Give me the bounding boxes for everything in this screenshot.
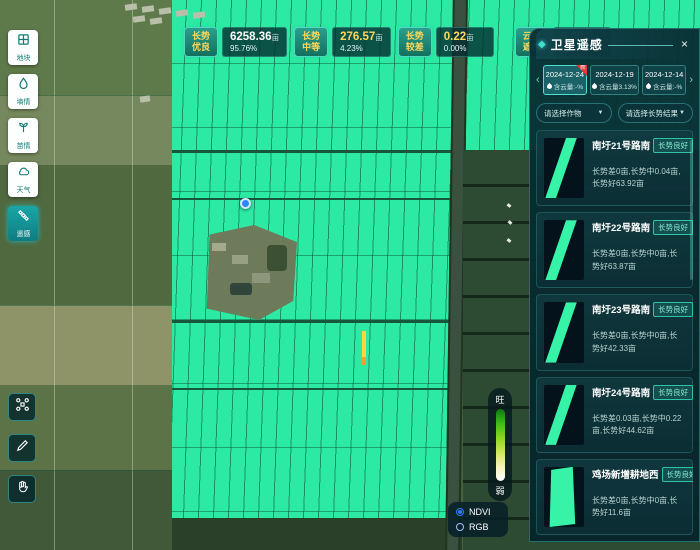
map-tree-band	[172, 518, 462, 550]
sidebar-item-label: 遥感	[16, 228, 30, 238]
stat-growth-excellent: 长势优良 6258.36亩 95.76%	[184, 27, 287, 57]
stat-unit: 亩	[272, 33, 280, 42]
map-tools	[8, 393, 36, 503]
map-road-line	[54, 0, 55, 550]
field-thumbnail	[544, 220, 584, 280]
stat-percent: 95.76%	[230, 44, 279, 53]
droplet-icon	[17, 77, 30, 95]
growth-status-badge: 长势良好	[653, 220, 693, 235]
map-field-boundary	[172, 388, 457, 390]
stat-unit: 亩	[375, 33, 383, 42]
field-list: 南圩21号路南 长势良好 长势差0亩,长势中0.04亩,长势好63.92亩 南圩…	[536, 130, 693, 535]
crop-select-label: 请选择作物	[544, 108, 582, 119]
plot-grid-icon	[17, 33, 30, 51]
radio-selected-icon[interactable]	[456, 508, 464, 516]
pencil-icon	[15, 438, 30, 458]
sidebar-item-label: 墒情	[16, 96, 30, 106]
field-card[interactable]: 南圩21号路南 长势良好 长势差0亩,长势中0.04亩,长势好63.92亩	[536, 130, 693, 206]
diamond-icon: ◆	[538, 39, 546, 50]
field-shape	[544, 220, 584, 280]
chevron-down-icon: ▼	[679, 110, 685, 116]
sidebar-item-plots[interactable]: 地块	[8, 30, 38, 65]
radio-unselected-icon[interactable]	[456, 523, 464, 531]
cloud-droplet-icon	[591, 82, 598, 89]
ndvi-legend: 旺 弱	[488, 388, 512, 501]
field-card[interactable]: 南圩23号路南 长势良好 长势差0亩,长势中0亩,长势好42.33亩	[536, 294, 693, 370]
growth-status-badge: 长势良好	[653, 385, 693, 400]
growth-status-badge: 长势良好	[653, 302, 693, 317]
date-tab[interactable]: 2024-12-19 含云量3.13%	[590, 65, 639, 95]
legend-top-label: 旺	[495, 393, 504, 406]
field-shape	[544, 302, 584, 362]
growth-select-label: 请选择长势结果	[626, 108, 679, 119]
header-decoration-line	[608, 34, 673, 46]
stat-badge: 长势较差	[398, 27, 432, 57]
growth-result-select[interactable]: 请选择长势结果 ▼	[618, 103, 694, 123]
layer-option-label: RGB	[469, 522, 489, 532]
panel-scrollbar[interactable]	[690, 140, 693, 280]
field-description: 长势差0.03亩,长势中0.22亩,长势好44.62亩	[592, 413, 685, 438]
stat-value-box: 0.22亩 0.00%	[436, 27, 494, 57]
field-card[interactable]: 鸡场新增耕地西 长势良好 长势差0亩,长势中0亩,长势好11.6亩	[536, 459, 693, 535]
date-tab[interactable]: 新 2024-12-24 含云量:-%	[543, 65, 587, 95]
layer-option-rgb[interactable]: RGB	[456, 522, 500, 532]
field-title: 南圩22号路南	[592, 220, 650, 234]
sidebar-item-label: 天气	[16, 184, 30, 194]
satellite-icon	[17, 209, 30, 227]
sidebar-item-weather[interactable]: 天气	[8, 162, 38, 197]
draw-tool-button[interactable]	[8, 434, 36, 462]
weather-icon	[17, 165, 30, 183]
sidebar-item-seedling[interactable]: 苗情	[8, 118, 38, 153]
layer-option-label: NDVI	[469, 507, 491, 517]
chevron-right-icon[interactable]: ›	[689, 65, 693, 95]
drone-tool-button[interactable]	[8, 393, 36, 421]
growth-status-badge: 长势良好	[662, 467, 693, 482]
stat-growth-medium: 长势中等 276.57亩 4.23%	[294, 27, 391, 57]
stat-area: 276.57	[340, 31, 375, 43]
stat-percent: 4.23%	[340, 44, 383, 53]
map-trees	[267, 245, 287, 271]
date-label: 2024-12-19	[592, 70, 637, 79]
layer-toggle: NDVI RGB	[448, 502, 508, 537]
field-description: 长势差0亩,长势中0亩,长势好11.6亩	[592, 495, 685, 520]
map-field-boundary	[172, 198, 457, 200]
stat-unit: 亩	[466, 33, 474, 42]
chevron-down-icon: ▼	[598, 110, 604, 116]
panel-title: 卫星遥感	[551, 36, 603, 53]
field-description: 长势差0亩,长势中0亩,长势好63.87亩	[592, 248, 685, 273]
date-label: 2024-12-24	[545, 70, 585, 79]
crop-select[interactable]: 请选择作物 ▼	[536, 103, 612, 123]
pan-tool-button[interactable]	[8, 475, 36, 503]
sidebar-item-remote-sensing[interactable]: 遥感	[8, 206, 38, 241]
map-building	[212, 243, 226, 251]
growth-status-badge: 长势良好	[653, 138, 693, 153]
stat-badge: 长势中等	[294, 27, 328, 57]
date-selector: ‹ 新 2024-12-24 含云量:-% 2024-12-19 含云量3.13…	[536, 65, 693, 95]
seedling-icon	[17, 121, 30, 139]
chevron-left-icon[interactable]: ‹	[536, 65, 540, 95]
field-card[interactable]: 南圩22号路南 长势良好 长势差0亩,长势中0亩,长势好63.87亩	[536, 212, 693, 288]
legend-bottom-label: 弱	[495, 484, 504, 497]
drone-icon	[15, 397, 30, 417]
stat-value-box: 6258.36亩 95.76%	[222, 27, 287, 57]
field-description: 长势差0亩,长势中0.04亩,长势好63.92亩	[592, 166, 685, 191]
field-title: 南圩24号路南	[592, 385, 650, 399]
field-title: 南圩21号路南	[592, 138, 650, 152]
map-road-line	[132, 0, 133, 550]
stat-area: 0.22	[444, 31, 466, 43]
stat-area: 6258.36	[230, 31, 272, 43]
map-pond	[230, 283, 252, 295]
field-card[interactable]: 南圩24号路南 长势良好 长势差0.03亩,长势中0.22亩,长势好44.62亩	[536, 377, 693, 453]
field-description: 长势差0亩,长势中0亩,长势好42.33亩	[592, 330, 685, 355]
sidebar-item-soil-moisture[interactable]: 墒情	[8, 74, 38, 109]
sidebar-nav: 地块 墒情 苗情 天气 遥感	[8, 30, 38, 241]
stat-percent: 0.00%	[444, 44, 486, 53]
map-field-boundary	[172, 150, 457, 153]
stat-badge: 长势优良	[184, 27, 218, 57]
field-shape	[544, 385, 584, 445]
field-title: 鸡场新增耕地西	[592, 467, 659, 481]
field-title: 南圩23号路南	[592, 302, 650, 316]
filter-row: 请选择作物 ▼ 请选择长势结果 ▼	[536, 103, 693, 123]
field-shape	[544, 138, 584, 198]
map-location-marker[interactable]	[240, 198, 251, 209]
field-thumbnail	[544, 302, 584, 362]
legend-gradient-bar	[496, 409, 505, 481]
field-thumbnail	[544, 467, 584, 527]
close-icon[interactable]: ×	[678, 37, 691, 51]
cloud-droplet-icon	[546, 82, 553, 89]
map-field-boundary	[172, 320, 457, 323]
date-label: 2024-12-14	[644, 70, 684, 79]
map-field-boundary	[0, 305, 175, 306]
map-building	[252, 273, 270, 283]
cloud-droplet-icon	[645, 82, 652, 89]
map-building	[232, 255, 248, 264]
cloud-amount: 含云量:-%	[653, 81, 682, 91]
field-shape	[544, 467, 584, 527]
date-tab[interactable]: 2024-12-14 含云量:-%	[642, 65, 686, 95]
panel-header: ◆ 卫星遥感 ×	[536, 29, 693, 59]
map-village	[202, 225, 297, 320]
satellite-panel: ◆ 卫星遥感 × ‹ 新 2024-12-24 含云量:-% 2024-12-1…	[529, 28, 700, 542]
field-thumbnail	[544, 138, 584, 198]
field-thumbnail	[544, 385, 584, 445]
layer-option-ndvi[interactable]: NDVI	[456, 507, 500, 517]
map-weak-strip	[362, 331, 366, 357]
sidebar-item-label: 苗情	[16, 140, 30, 150]
cloud-amount: 含云量3.13%	[599, 81, 637, 91]
stat-value-box: 276.57亩 4.23%	[332, 27, 391, 57]
stat-growth-poor: 长势较差 0.22亩 0.00%	[398, 27, 494, 57]
hand-icon	[15, 479, 30, 499]
sidebar-item-label: 地块	[16, 52, 30, 62]
map-field-patch	[0, 305, 175, 385]
cloud-amount: 含云量:-%	[554, 81, 583, 91]
map-weak-strip	[362, 357, 366, 365]
